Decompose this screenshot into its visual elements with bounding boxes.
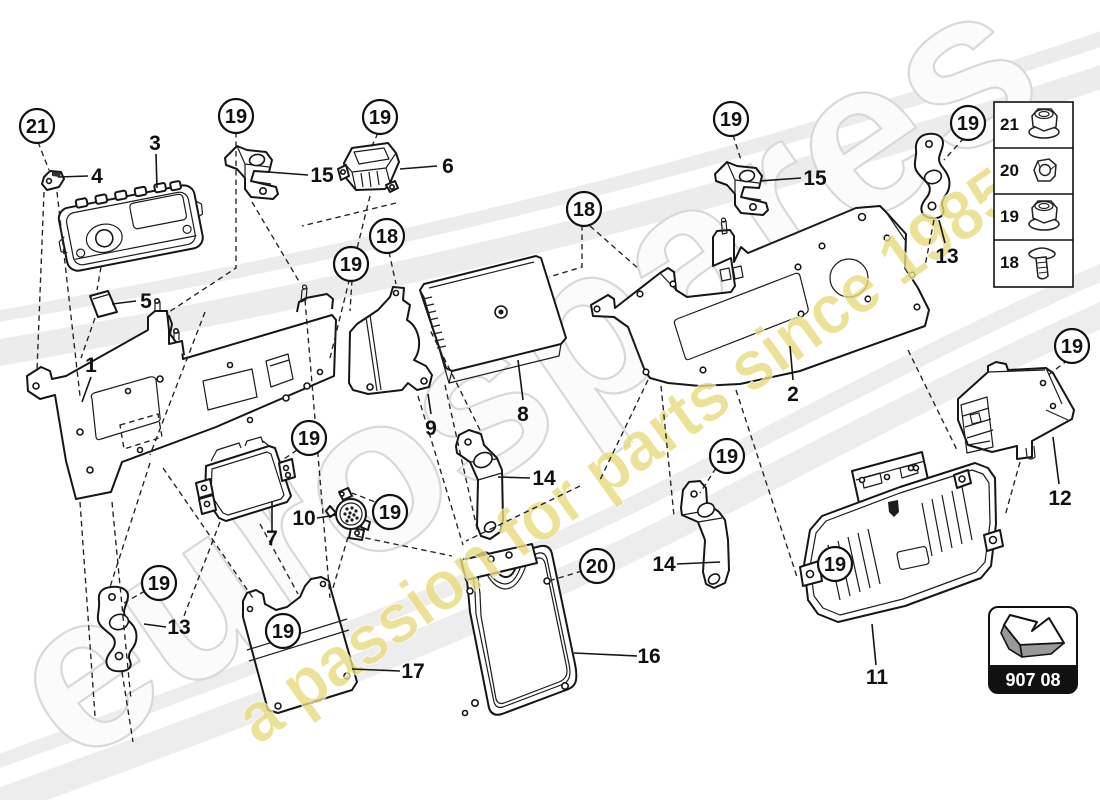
- svg-text:5: 5: [140, 290, 152, 313]
- svg-text:19: 19: [272, 621, 294, 643]
- svg-text:18: 18: [1000, 253, 1019, 272]
- svg-text:907 08: 907 08: [1005, 670, 1060, 690]
- svg-text:18: 18: [376, 226, 398, 248]
- svg-text:2: 2: [787, 383, 799, 406]
- svg-text:19: 19: [148, 573, 170, 595]
- svg-text:18: 18: [573, 199, 595, 221]
- svg-text:19: 19: [298, 428, 320, 450]
- svg-text:3: 3: [149, 132, 161, 155]
- svg-text:19: 19: [225, 106, 247, 128]
- svg-text:19: 19: [340, 254, 362, 276]
- svg-text:19: 19: [379, 502, 401, 524]
- svg-text:1: 1: [85, 354, 97, 377]
- svg-text:19: 19: [957, 113, 979, 135]
- svg-text:19: 19: [716, 446, 738, 468]
- svg-text:19: 19: [1061, 336, 1083, 358]
- svg-text:10: 10: [292, 507, 315, 530]
- svg-text:16: 16: [637, 645, 660, 668]
- svg-text:14: 14: [652, 553, 676, 576]
- svg-text:13: 13: [167, 616, 190, 639]
- svg-text:8: 8: [517, 403, 529, 426]
- svg-text:17: 17: [401, 660, 424, 683]
- svg-text:21: 21: [1000, 115, 1019, 134]
- svg-text:7: 7: [266, 527, 278, 550]
- svg-text:20: 20: [1000, 161, 1019, 180]
- svg-text:9: 9: [425, 417, 437, 440]
- svg-text:20: 20: [586, 556, 608, 578]
- svg-text:6: 6: [442, 155, 454, 178]
- svg-text:19: 19: [824, 554, 846, 576]
- svg-text:15: 15: [803, 167, 827, 190]
- svg-text:11: 11: [866, 666, 889, 689]
- svg-text:12: 12: [1048, 487, 1071, 510]
- svg-text:13: 13: [935, 245, 958, 268]
- svg-text:21: 21: [26, 116, 48, 138]
- svg-text:14: 14: [532, 467, 556, 490]
- svg-text:19: 19: [720, 109, 742, 131]
- svg-text:19: 19: [1000, 207, 1019, 226]
- svg-text:15: 15: [310, 164, 334, 187]
- svg-text:19: 19: [369, 107, 391, 129]
- svg-text:4: 4: [91, 165, 103, 188]
